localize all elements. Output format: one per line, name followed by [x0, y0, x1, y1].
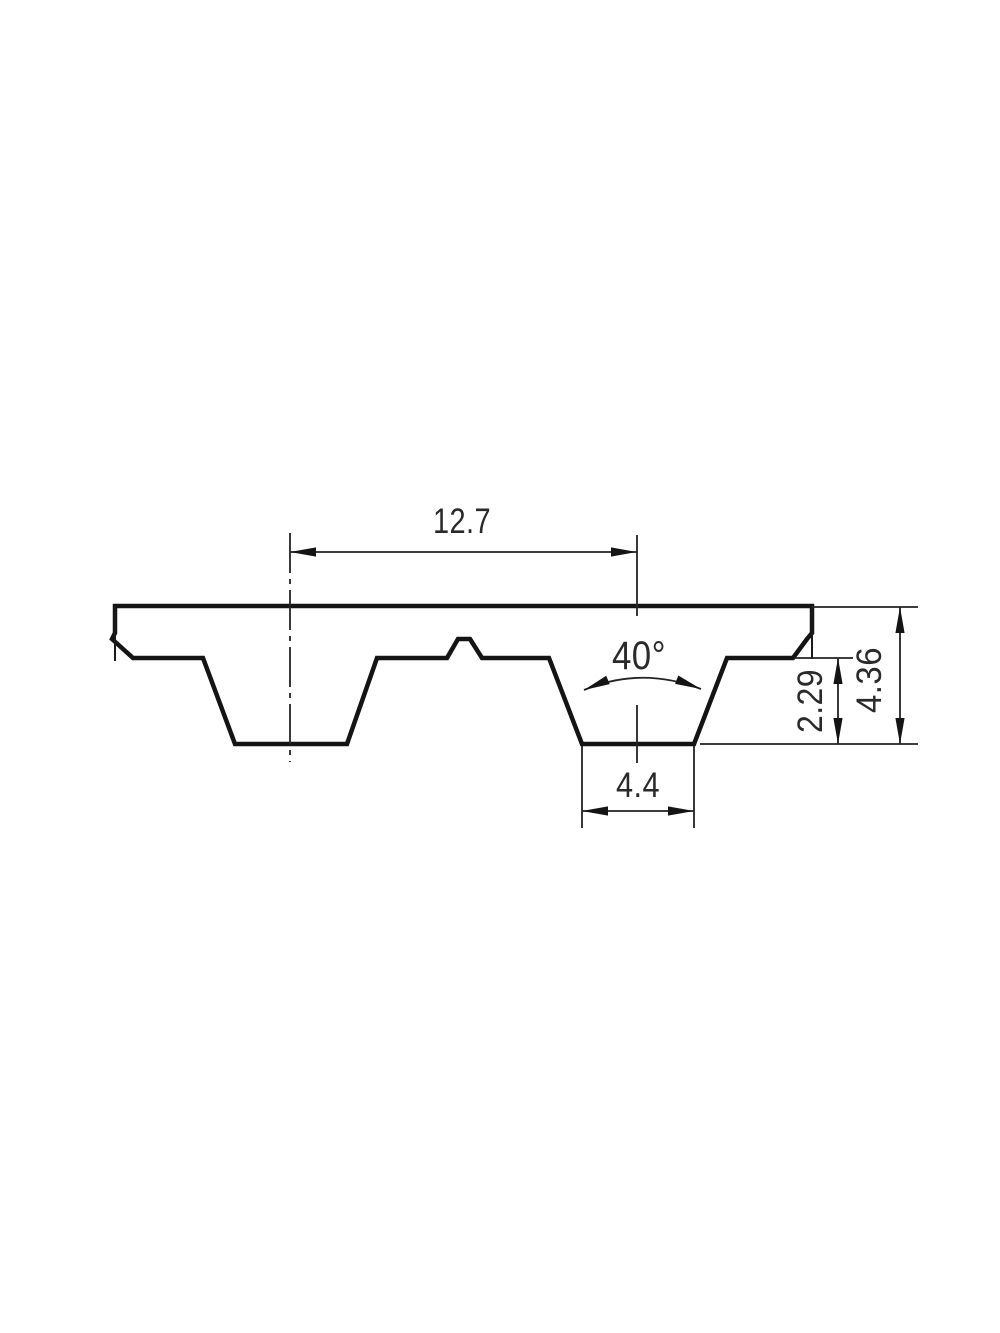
belt-thickness-arrow-top [895, 607, 904, 633]
pitch-arrow-left [290, 547, 316, 556]
tooth-height-arrow-top [833, 658, 842, 684]
dimension-tooth-width: 4.4 [582, 746, 694, 828]
belt-outline [112, 606, 812, 744]
drawing-canvas: 12.7 40° 2.29 4.36 [0, 0, 1000, 1333]
belt-thickness-arrow-bottom [895, 718, 904, 744]
angle-arrow-left [584, 676, 610, 690]
tooth-width-label: 4.4 [616, 766, 660, 805]
angle-arrow-right [675, 676, 701, 690]
tooth-height-label: 2.29 [791, 669, 830, 733]
belt-profile-drawing: 12.7 40° 2.29 4.36 [0, 0, 1000, 1333]
belt-thickness-label: 4.36 [850, 647, 889, 713]
pitch-arrow-right [611, 547, 637, 556]
dimension-pitch: 12.7 [290, 502, 637, 557]
pitch-label: 12.7 [433, 502, 491, 541]
angle-label: 40° [612, 634, 666, 678]
tooth-width-arrow-left [582, 806, 608, 815]
tooth-height-arrow-bottom [833, 718, 842, 744]
tooth-width-arrow-right [668, 806, 694, 815]
dimension-tooth-height: 2.29 [791, 658, 853, 744]
dimension-angle: 40° [584, 634, 701, 690]
